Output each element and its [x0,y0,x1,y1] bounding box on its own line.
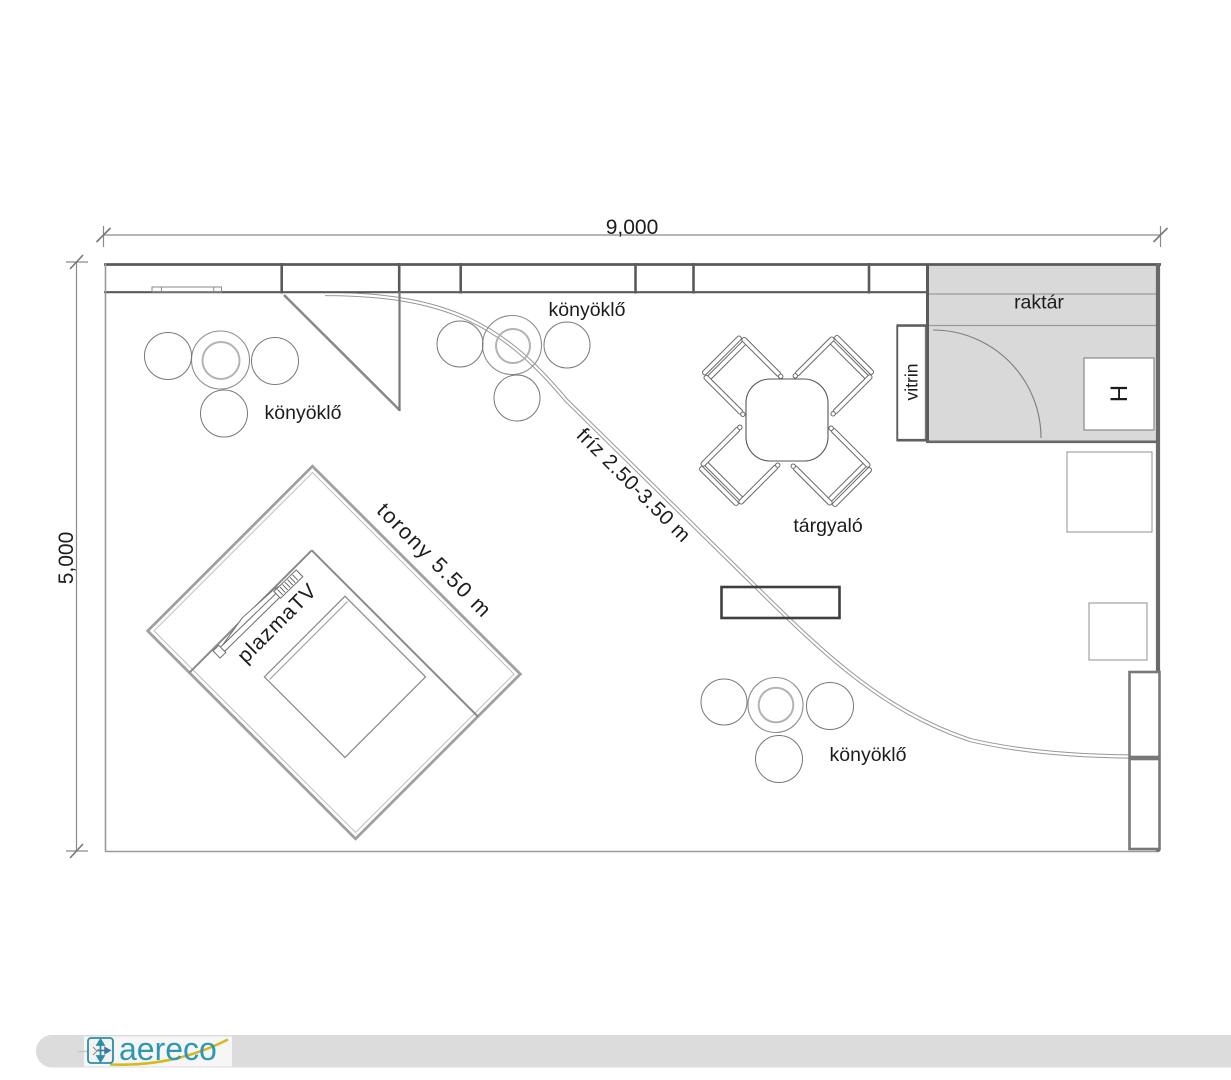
svg-text:aereco: aereco [119,1031,217,1067]
svg-text:fríz 2.50-3.50 m: fríz 2.50-3.50 m [572,424,695,547]
svg-text:torony 5.50 m: torony 5.50 m [372,498,497,623]
svg-text:könyöklő: könyöklő [830,744,907,766]
svg-text:könyöklő: könyöklő [549,299,626,321]
svg-text:vitrin: vitrin [902,364,922,401]
svg-text:5,000: 5,000 [55,532,78,585]
svg-text:raktár: raktár [1014,292,1064,314]
svg-text:könyöklő: könyöklő [265,402,342,424]
svg-text:H: H [1105,385,1132,402]
svg-text:tárgyaló: tárgyaló [793,515,863,537]
svg-text:9,000: 9,000 [606,216,659,239]
